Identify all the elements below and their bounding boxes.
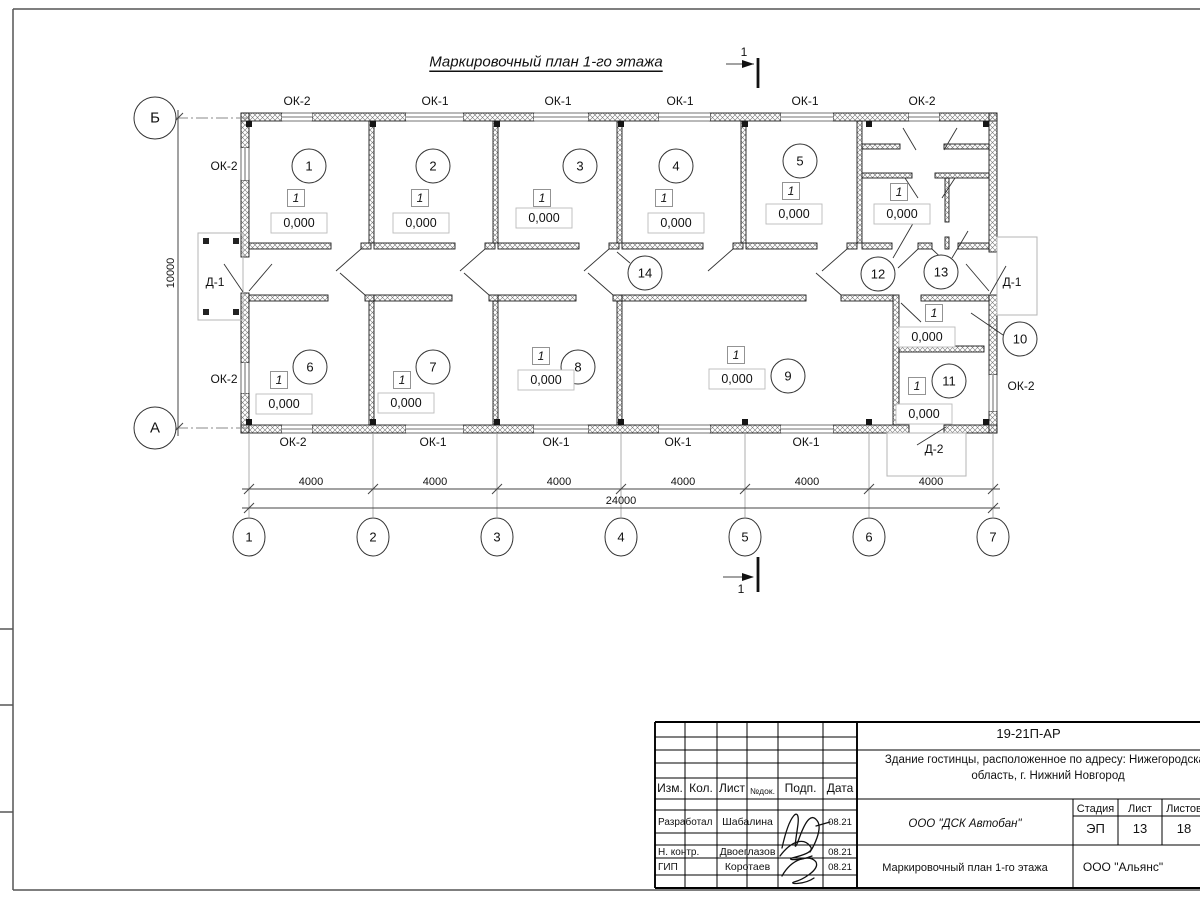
grid-number-7: 7: [989, 530, 996, 545]
wall: [241, 393, 249, 433]
elevation-value: 0,000: [886, 207, 917, 221]
elevation-value: 0,000: [283, 216, 314, 230]
elevation-value: 0,000: [908, 407, 939, 421]
titleblock-col-list: Лист: [717, 781, 747, 795]
titleblock-sheet-label: Лист: [1118, 802, 1162, 816]
floor-type-mark-value: 1: [417, 191, 424, 205]
wall: [989, 295, 997, 375]
thin-line: [464, 273, 489, 295]
room-number-7: 7: [429, 360, 436, 375]
wall: [918, 243, 932, 249]
dim-value: 24000: [606, 495, 637, 507]
wall: [741, 121, 746, 243]
titleblock-sheet-value: 13: [1118, 822, 1162, 836]
wall: [862, 173, 912, 178]
floor-type-mark-value: 1: [733, 348, 740, 362]
window-mark: ОК-1: [793, 435, 820, 449]
titleblock-object-line1: Здание гостинцы, расположенное по адресу…: [859, 753, 1200, 767]
titleblock-role-gip: ГИП: [658, 861, 718, 875]
column-node: [742, 419, 748, 425]
wall: [609, 243, 619, 249]
titleblock-sheets-value: 18: [1162, 822, 1200, 836]
titleblock-stage-value: ЭП: [1073, 822, 1118, 836]
porch-column: [233, 309, 239, 315]
wall: [989, 411, 997, 433]
elevation-value: 0,000: [778, 207, 809, 221]
wall: [374, 295, 452, 301]
titleblock-date-ncontrol: 08.21: [823, 846, 857, 860]
room-number-1: 1: [305, 159, 312, 174]
titleblock-contractor-org: ООО "ДСК Автобан": [859, 817, 1071, 831]
elevation-value: 0,000: [530, 373, 561, 387]
wall: [833, 113, 909, 121]
window-mark: ОК-1: [420, 435, 447, 449]
floor-type-mark-value: 1: [399, 373, 406, 387]
wall: [945, 237, 949, 249]
dim-value: 4000: [547, 476, 571, 488]
grid-number-2: 2: [369, 530, 376, 545]
thin-line: [898, 249, 918, 268]
axis-letter-Б: Б: [150, 110, 160, 127]
thin-line: [336, 249, 361, 271]
wall: [622, 243, 703, 249]
titleblock-sheets-label: Листов: [1162, 802, 1200, 816]
titleblock-name-gip: Коротаев: [717, 860, 778, 874]
wall: [312, 425, 406, 433]
thin-line: [460, 249, 485, 271]
titleblock-date-gip: 08.21: [823, 861, 857, 875]
wall: [588, 113, 659, 121]
room-number-2: 2: [429, 159, 436, 174]
elevation-value: 0,000: [528, 211, 559, 225]
wall: [493, 301, 498, 425]
wall: [312, 113, 406, 121]
column-node: [618, 121, 624, 127]
wall: [485, 243, 495, 249]
window-mark: ОК-2: [211, 372, 238, 386]
wall: [989, 113, 997, 252]
room-number-5: 5: [796, 154, 803, 169]
grid-number-1: 1: [245, 530, 252, 545]
door-mark: Д-1: [1003, 275, 1022, 289]
thin-line: [617, 252, 630, 263]
titleblock-name-developer: Шабалина: [717, 815, 778, 829]
column-node: [246, 419, 252, 425]
window-mark: ОК-1: [665, 435, 692, 449]
window-mark: ОК-1: [792, 94, 819, 108]
thin-line: [901, 303, 921, 322]
window-mark: ОК-1: [543, 435, 570, 449]
wall: [862, 144, 900, 149]
elevation-value: 0,000: [390, 396, 421, 410]
dim-value: 10000: [165, 258, 177, 289]
column-node: [370, 121, 376, 127]
titleblock-date-developer: 08.21: [823, 816, 857, 830]
floor-type-mark-value: 1: [539, 191, 546, 205]
wall: [498, 243, 579, 249]
wall: [365, 295, 374, 301]
drawing-sheet: 1234514121367891011БА1234567111111111111…: [0, 0, 1200, 900]
room-number-3: 3: [576, 159, 583, 174]
dim-value: 4000: [671, 476, 695, 488]
wall: [945, 178, 949, 222]
wall: [588, 425, 659, 433]
window-mark: ОК-2: [211, 159, 238, 173]
titleblock-col-data: Дата: [823, 781, 857, 795]
column-node: [246, 121, 252, 127]
titleblock-col-ndok: №док.: [747, 784, 778, 798]
wall: [241, 180, 249, 257]
wall: [249, 295, 328, 301]
grid-number-5: 5: [741, 530, 748, 545]
thin-line: [708, 249, 733, 271]
floor-type-mark-value: 1: [914, 379, 921, 393]
wall: [857, 121, 862, 243]
window-mark: ОК-1: [422, 94, 449, 108]
floor-type-mark-value: 1: [661, 191, 668, 205]
titleblock-role-developer: Разработал: [658, 816, 718, 830]
door-mark: Д-1: [206, 275, 225, 289]
wall: [463, 425, 534, 433]
wall: [613, 295, 622, 301]
room-number-13: 13: [934, 265, 948, 280]
window-mark: ОК-1: [545, 94, 572, 108]
wall: [710, 113, 781, 121]
elevation-value: 0,000: [268, 397, 299, 411]
dim-value: 4000: [919, 476, 943, 488]
titleblock-col-kol: Кол.: [685, 781, 717, 795]
thin-line: [584, 249, 609, 271]
titleblock-col-podp: Подп.: [778, 781, 823, 795]
titleblock-object-line2: область, г. Нижний Новгород: [859, 769, 1200, 783]
wall: [369, 121, 374, 243]
column-node: [494, 419, 500, 425]
dim-value: 4000: [795, 476, 819, 488]
wall: [958, 243, 989, 249]
wall: [617, 121, 622, 243]
titleblock-col-izm: Изм.: [655, 781, 685, 795]
wall: [841, 295, 893, 301]
elevation-value: 0,000: [405, 216, 436, 230]
wall: [249, 243, 331, 249]
elevation-value: 0,000: [911, 330, 942, 344]
thin-line: [588, 273, 613, 295]
floor-type-mark-value: 1: [931, 306, 938, 320]
thin-line: [893, 220, 915, 258]
window-mark: ОК-2: [280, 435, 307, 449]
window-mark: ОК-2: [1008, 379, 1035, 393]
column-node: [742, 121, 748, 127]
door-mark: Д-2: [925, 442, 944, 456]
wall: [710, 425, 781, 433]
elevation-value: 0,000: [660, 216, 691, 230]
column-node: [983, 419, 989, 425]
thin-line: [903, 128, 916, 150]
signature: [782, 858, 817, 883]
section-mark-label: 1: [741, 45, 748, 59]
section-mark-label: 1: [738, 582, 745, 596]
wall: [489, 295, 498, 301]
wall: [921, 295, 989, 301]
elevation-value: 0,000: [721, 372, 752, 386]
porch-column: [233, 238, 239, 244]
window-mark: ОК-2: [909, 94, 936, 108]
wall: [241, 293, 249, 363]
column-node: [370, 419, 376, 425]
section-arrow: [742, 573, 754, 581]
column-node: [983, 121, 989, 127]
wall: [369, 301, 374, 425]
grid-number-3: 3: [493, 530, 500, 545]
floor-type-mark-value: 1: [276, 373, 283, 387]
wall: [374, 243, 455, 249]
wall: [361, 243, 371, 249]
column-node: [494, 121, 500, 127]
column-node: [618, 419, 624, 425]
thin-line: [249, 264, 272, 291]
titleblock-role-ncontrol: Н. контр.: [658, 846, 718, 860]
floor-type-mark-value: 1: [788, 184, 795, 198]
wall: [944, 144, 989, 149]
wall: [622, 295, 806, 301]
dim-value: 4000: [299, 476, 323, 488]
window-mark: ОК-2: [284, 94, 311, 108]
grid-number-4: 4: [617, 530, 624, 545]
room-number-9: 9: [784, 369, 791, 384]
floor-type-mark-value: 1: [293, 191, 300, 205]
room-number-8: 8: [574, 360, 581, 375]
grid-number-6: 6: [865, 530, 872, 545]
porch-column: [203, 238, 209, 244]
wall: [935, 173, 989, 178]
column-node: [866, 121, 872, 127]
thin-line: [971, 313, 1003, 335]
wall: [498, 295, 576, 301]
wall: [939, 113, 997, 121]
titleblock-doc-number: 19-21П-АР: [857, 727, 1200, 741]
room-number-4: 4: [672, 159, 679, 174]
wall: [617, 301, 622, 425]
axis-letter-А: А: [150, 420, 160, 437]
porch-column: [203, 309, 209, 315]
titleblock-client-org: ООО "Альянс": [1073, 860, 1173, 874]
wall: [463, 113, 534, 121]
room-number-10: 10: [1013, 332, 1027, 347]
signature: [780, 841, 812, 859]
thin-line: [822, 249, 847, 271]
room-number-11: 11: [942, 374, 956, 389]
thin-line: [224, 264, 243, 292]
wall: [847, 243, 857, 249]
room-number-12: 12: [871, 267, 885, 282]
thin-line: [340, 273, 365, 295]
room-number-6: 6: [306, 360, 313, 375]
column-node: [866, 419, 872, 425]
wall: [862, 243, 892, 249]
wall: [833, 425, 909, 433]
window-mark: ОК-1: [667, 94, 694, 108]
section-arrow: [742, 60, 754, 68]
floor-type-mark-value: 1: [538, 349, 545, 363]
thin-line: [816, 273, 841, 295]
floor-type-mark-value: 1: [896, 185, 903, 199]
drawing-title: Маркировочный план 1-го этажа: [429, 54, 662, 71]
dim-value: 4000: [423, 476, 447, 488]
titleblock-name-ncontrol: Двоеглазов: [717, 845, 778, 859]
wall: [493, 121, 498, 243]
titleblock-sheet-title: Маркировочный план 1-го этажа: [859, 861, 1071, 875]
wall: [746, 243, 817, 249]
thin-line: [966, 264, 989, 291]
titleblock-stage-label: Стадия: [1073, 802, 1118, 816]
wall: [733, 243, 743, 249]
room-number-14: 14: [638, 266, 652, 281]
